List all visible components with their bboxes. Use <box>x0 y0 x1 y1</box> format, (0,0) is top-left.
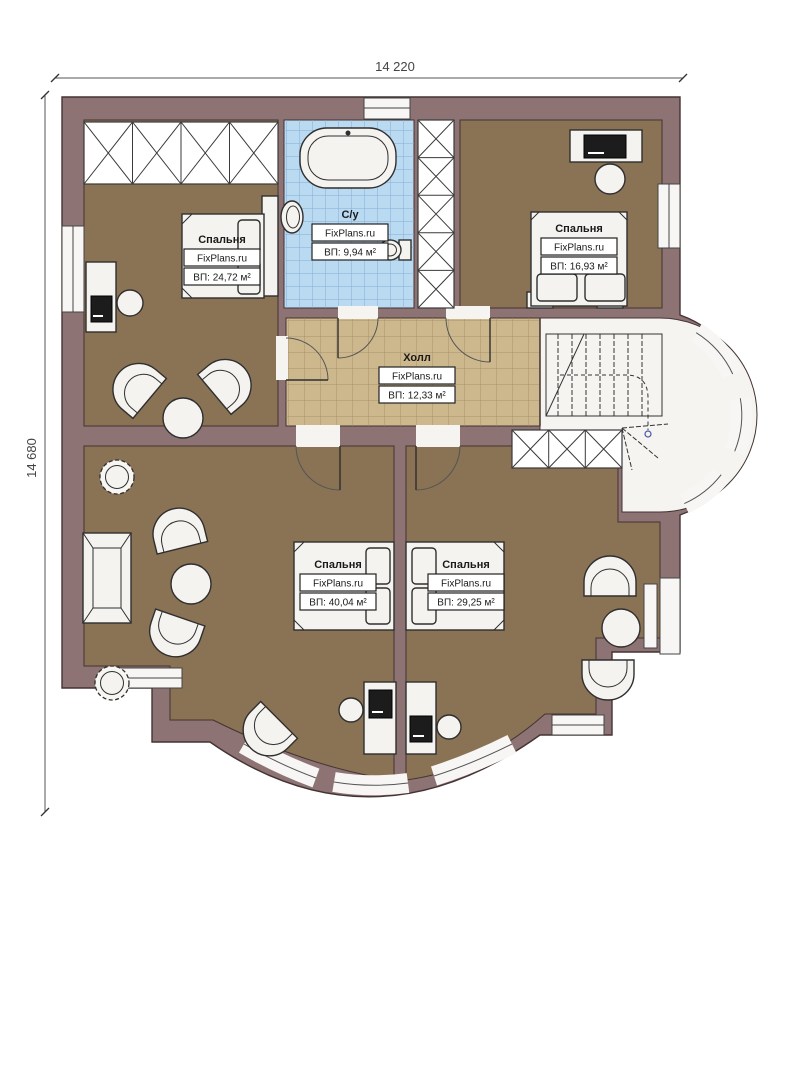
room-area: ВП: 40,04 м² <box>309 598 367 609</box>
dimension-height-label: 14 680 <box>24 438 39 478</box>
wardrobe-top-left <box>84 122 278 184</box>
plant <box>100 460 134 494</box>
room-name: Спальня <box>555 223 603 235</box>
window-bottom-right-wall <box>660 578 680 654</box>
bathtub <box>300 128 396 188</box>
room-name: Спальня <box>314 559 362 571</box>
room-brand: FixPlans.ru <box>197 254 247 265</box>
wardrobe-under-stairs <box>512 430 622 468</box>
room-name: Холл <box>403 352 431 364</box>
computer <box>369 690 392 718</box>
radiator <box>644 584 657 648</box>
desk-chair <box>595 164 625 194</box>
desk-chair <box>437 715 461 739</box>
bay-window <box>735 398 742 451</box>
room-brand: FixPlans.ru <box>554 243 604 254</box>
fireplace <box>83 533 131 623</box>
dimension-left: 14 680 <box>24 91 49 816</box>
room-name: Спальня <box>198 234 246 246</box>
room-area: ВП: 24,72 м² <box>193 273 251 284</box>
computer <box>410 716 432 742</box>
desk-chair <box>339 698 363 722</box>
computer <box>584 135 626 158</box>
plant <box>95 666 129 700</box>
pillow <box>537 274 577 301</box>
round-table <box>602 609 640 647</box>
round-table <box>171 564 211 604</box>
wardrobe-column <box>418 120 454 308</box>
floor-plan-svg: 14 220 14 680 <box>0 0 792 1080</box>
floor-plan-page: 14 220 14 680 <box>0 0 792 1080</box>
room-brand: FixPlans.ru <box>325 229 375 240</box>
room-brand: FixPlans.ru <box>313 579 363 590</box>
pillow <box>585 274 625 301</box>
room-brand: FixPlans.ru <box>441 579 491 590</box>
room-area: ВП: 29,25 м² <box>437 598 495 609</box>
bathtub-faucet <box>346 131 351 136</box>
round-table <box>163 398 203 438</box>
desk-chair <box>117 290 143 316</box>
room-area: ВП: 16,93 м² <box>550 262 608 273</box>
room-area: ВП: 9,94 м² <box>324 248 377 259</box>
room-name: С/у <box>341 209 359 221</box>
dimension-width-label: 14 220 <box>375 59 415 74</box>
computer <box>91 296 112 322</box>
room-brand: FixPlans.ru <box>392 372 442 383</box>
room-area: ВП: 12,33 м² <box>388 391 446 402</box>
dimension-top: 14 220 <box>51 59 687 82</box>
room-name: Спальня <box>442 559 490 571</box>
